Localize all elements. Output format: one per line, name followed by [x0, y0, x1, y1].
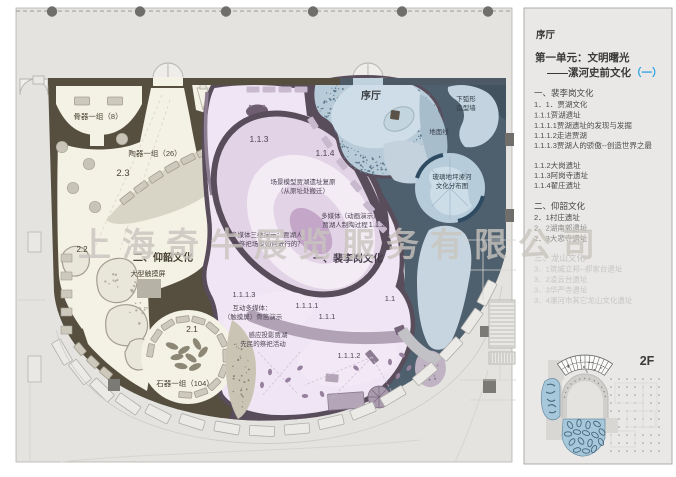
svg-text:1．1．贾湖文化: 1．1．贾湖文化 — [534, 99, 588, 109]
svg-text:（触摸屏）骨笛演示: （触摸屏）骨笛演示 — [224, 312, 283, 321]
svg-text:1.1.1.2: 1.1.1.2 — [338, 351, 361, 360]
svg-text:石器一组（104）: 石器一组（104） — [156, 378, 214, 388]
svg-text:1.1.1.1贾湖遗址的发现与发掘: 1.1.1.1贾湖遗址的发现与发掘 — [534, 120, 632, 130]
svg-text:骨器一组（8）: 骨器一组（8） — [73, 111, 122, 121]
svg-text:2.1: 2.1 — [186, 324, 198, 334]
svg-text:3．1筑城立邦--郝家台遗址: 3．1筑城立邦--郝家台遗址 — [534, 264, 623, 274]
svg-text:上海奇牛展览服务有限公司: 上海奇牛展览服务有限公司 — [78, 226, 606, 263]
svg-text:一、裴李岗文化: 一、裴李岗文化 — [534, 88, 594, 98]
svg-text:3．4漯河市其它龙山文化遗址: 3．4漯河市其它龙山文化遗址 — [534, 295, 633, 305]
svg-text:玻璃地坪溹河: 玻璃地坪溹河 — [433, 172, 473, 181]
svg-text:第一单元：文明曙光: 第一单元：文明曙光 — [535, 51, 630, 64]
svg-text:1.1.4翟庄遗址: 1.1.4翟庄遗址 — [534, 180, 581, 190]
svg-text:大型触摸屏: 大型触摸屏 — [131, 269, 166, 278]
svg-text:序厅: 序厅 — [536, 29, 556, 41]
svg-text:造型墙: 造型墙 — [456, 103, 476, 112]
svg-text:1.1: 1.1 — [385, 294, 395, 303]
svg-text:感应投影贾湖: 感应投影贾湖 — [249, 330, 289, 339]
svg-text:1.1.3阿岗寺遗址: 1.1.3阿岗寺遗址 — [534, 170, 589, 180]
svg-text:1.1.1.3贾湖人的骄傲--创造世界之最: 1.1.1.3贾湖人的骄傲--创造世界之最 — [534, 140, 652, 150]
svg-text:地面线: 地面线 — [429, 127, 449, 136]
svg-text:（从原址处搬迁）: （从原址处搬迁） — [277, 186, 329, 195]
svg-text:文化分布图: 文化分布图 — [436, 181, 469, 190]
svg-text:陶器一组（26）: 陶器一组（26） — [128, 148, 181, 158]
svg-text:序厅: 序厅 — [361, 89, 381, 102]
svg-text:1.1.1: 1.1.1 — [319, 312, 336, 321]
svg-text:先民的祭祀活动: 先民的祭祀活动 — [240, 339, 286, 348]
svg-text:1.1.1.3: 1.1.1.3 — [233, 290, 256, 299]
svg-text:1.1.3: 1.1.3 — [250, 134, 269, 144]
svg-text:互动多媒体：: 互动多媒体： — [233, 303, 272, 312]
svg-text:3．3华严寺遗址: 3．3华严寺遗址 — [534, 285, 588, 295]
svg-text:3．2凌云台遗址: 3．2凌云台遗址 — [534, 274, 588, 284]
svg-text:1.1.1贾湖遗址: 1.1.1贾湖遗址 — [534, 110, 581, 120]
svg-text:1.1.4: 1.1.4 — [316, 148, 335, 158]
svg-text:多媒体（动画演示）：: 多媒体（动画演示）： — [321, 211, 383, 220]
svg-text:2F: 2F — [640, 354, 655, 368]
svg-text:2．1村庄遗址: 2．1村庄遗址 — [534, 212, 580, 222]
svg-text:场景模型贾湖遗址复原: 场景模型贾湖遗址复原 — [271, 177, 337, 186]
svg-text:二、仰韶文化: 二、仰韶文化 — [534, 201, 586, 211]
svg-text:1.1.2大岗遗址: 1.1.2大岗遗址 — [534, 160, 581, 170]
svg-text:——漯河史前文化（一）: ——漯河史前文化（一） — [547, 66, 663, 79]
svg-text:下弧形: 下弧形 — [456, 94, 476, 103]
svg-text:2.3: 2.3 — [116, 168, 129, 179]
svg-text:1.1.1.1: 1.1.1.1 — [296, 301, 319, 310]
svg-text:1.1.1.2走进贾湖: 1.1.1.2走进贾湖 — [534, 131, 587, 140]
